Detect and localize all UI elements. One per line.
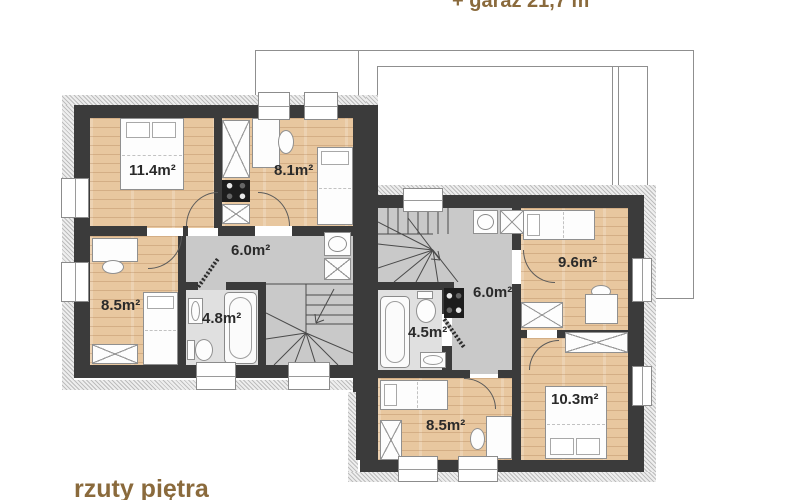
window <box>632 258 652 302</box>
room-area-label: 10.3m² <box>551 391 599 408</box>
garage-outline <box>377 66 648 187</box>
window <box>403 188 443 212</box>
reference-outline <box>255 50 256 97</box>
wall <box>628 195 644 472</box>
wall <box>356 392 378 460</box>
wardrobe <box>565 332 628 353</box>
room-area-label: 8.5m² <box>101 297 140 314</box>
wall <box>498 370 512 378</box>
pillow <box>152 122 176 138</box>
garage-outline <box>612 66 613 187</box>
room-area-label: 4.8m² <box>202 310 241 327</box>
toilet <box>195 339 213 361</box>
wardrobe <box>380 420 402 460</box>
wall <box>178 236 186 365</box>
wall <box>512 284 521 330</box>
washbasin <box>420 352 446 368</box>
room-area-label: 6.0m² <box>473 284 512 301</box>
room-area-label: 11.4m² <box>129 162 176 179</box>
bathtub <box>224 292 257 364</box>
wardrobe <box>521 302 563 328</box>
window <box>632 366 652 406</box>
desk <box>92 238 138 262</box>
room-area-label: 6.0m² <box>231 242 270 259</box>
washing-machine <box>324 232 351 256</box>
wardrobe <box>92 344 138 364</box>
garage-outline <box>618 66 619 187</box>
wall <box>183 226 188 236</box>
pillow <box>550 438 574 455</box>
toilet <box>187 340 195 360</box>
bathtub <box>380 296 410 368</box>
pillow <box>147 296 174 309</box>
wall <box>512 338 521 460</box>
window <box>258 92 290 120</box>
pillow <box>321 151 349 165</box>
reference-outline <box>255 50 693 51</box>
wardrobe <box>222 204 250 224</box>
desk <box>585 294 618 324</box>
exterior-wall <box>644 185 656 482</box>
wall <box>218 226 255 236</box>
garage-area-note: + garaż 21,7 m² <box>452 0 596 13</box>
reference-outline <box>358 50 359 97</box>
window <box>288 362 330 390</box>
window <box>61 178 89 218</box>
reference-outline <box>693 50 694 298</box>
wall <box>512 330 527 338</box>
window <box>304 92 338 120</box>
exterior-wall <box>348 472 656 482</box>
pillow <box>527 214 540 236</box>
toilet <box>417 291 433 299</box>
wall <box>226 282 258 290</box>
exterior-wall <box>62 95 74 390</box>
room-area-label: 4.5m² <box>408 324 447 341</box>
party-wall <box>353 105 378 392</box>
window <box>61 262 89 302</box>
washing-machine <box>473 210 498 234</box>
desk <box>252 118 280 168</box>
cabinet <box>324 258 351 280</box>
wall <box>378 282 454 290</box>
window <box>196 362 236 390</box>
pillow <box>576 438 600 455</box>
desk <box>486 416 512 459</box>
chair <box>278 130 294 154</box>
toilet <box>416 299 436 323</box>
wall <box>378 370 470 378</box>
pillow <box>126 122 150 138</box>
washbasin <box>188 298 203 324</box>
wall <box>258 282 266 365</box>
chair <box>470 428 485 450</box>
pillow <box>384 384 397 406</box>
stairs <box>266 283 353 365</box>
floor-plan: + garaż 21,7 m² rzuty piętra <box>0 0 800 500</box>
room-area-label: 9.6m² <box>558 254 597 271</box>
cabinet <box>500 210 524 234</box>
wall <box>74 105 90 378</box>
room-area-label: 8.1m² <box>274 162 313 179</box>
stove-icon <box>222 180 250 202</box>
wall <box>90 226 147 236</box>
window <box>458 456 498 482</box>
room-area-label: 8.5m² <box>426 417 465 434</box>
stairs <box>378 208 462 282</box>
window <box>398 456 438 482</box>
wardrobe <box>222 120 250 178</box>
plan-caption: rzuty piętra <box>74 475 209 500</box>
chair <box>102 260 124 274</box>
stove-icon <box>444 288 464 318</box>
